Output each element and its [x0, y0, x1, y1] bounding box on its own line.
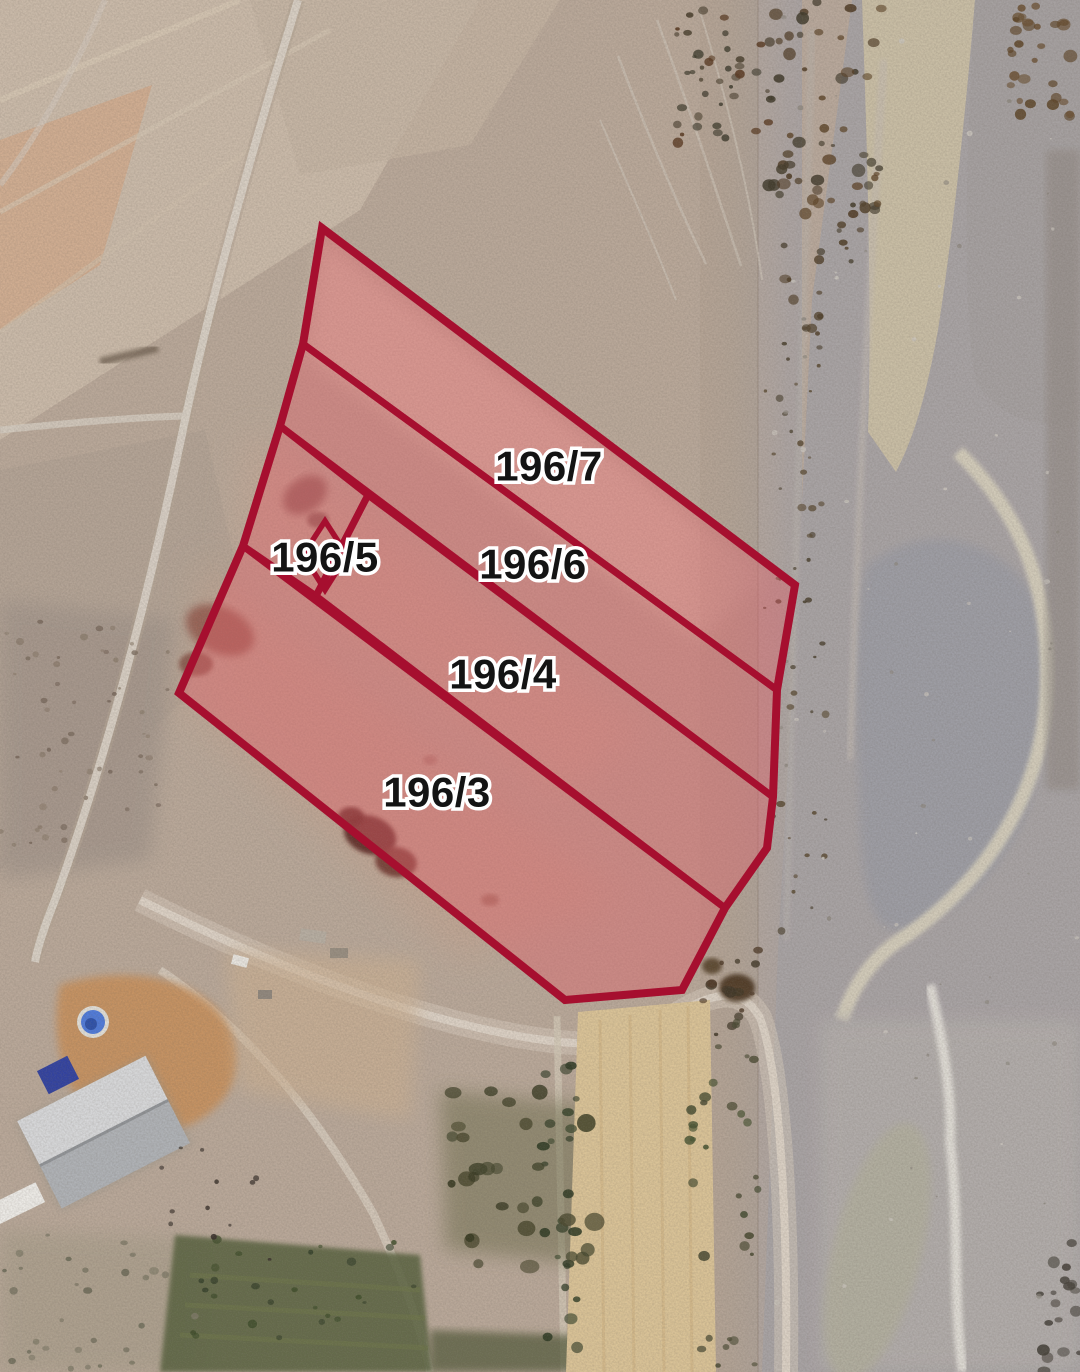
parcel-label-196-6: 196/6 — [479, 541, 587, 588]
parcel-label-196-3: 196/3 — [383, 769, 491, 816]
parcel-label-196-4: 196/4 — [449, 651, 557, 698]
parcel-label-196-7: 196/7 — [495, 443, 603, 490]
parcel-label-196-5: 196/5 — [271, 534, 379, 581]
satellite-map-view[interactable]: 196/7196/6196/5196/4196/3 — [0, 0, 1080, 1372]
